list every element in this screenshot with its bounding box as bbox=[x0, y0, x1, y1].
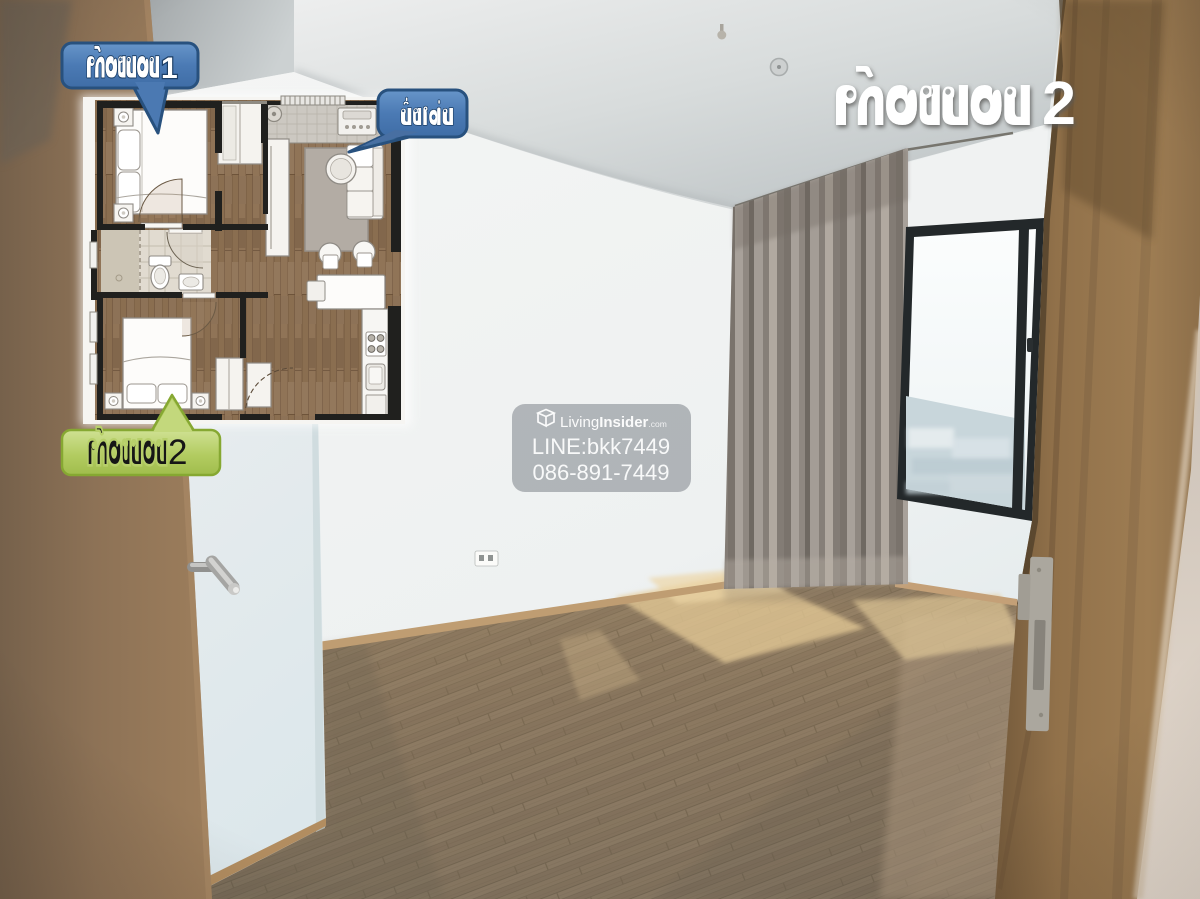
svg-text:2: 2 bbox=[168, 433, 187, 472]
svg-text:2: 2 bbox=[1042, 69, 1076, 137]
svg-text:086-891-7449: 086-891-7449 bbox=[532, 460, 669, 485]
svg-text:LINE:bkk7449: LINE:bkk7449 bbox=[532, 434, 670, 459]
svg-text:1: 1 bbox=[161, 52, 178, 85]
